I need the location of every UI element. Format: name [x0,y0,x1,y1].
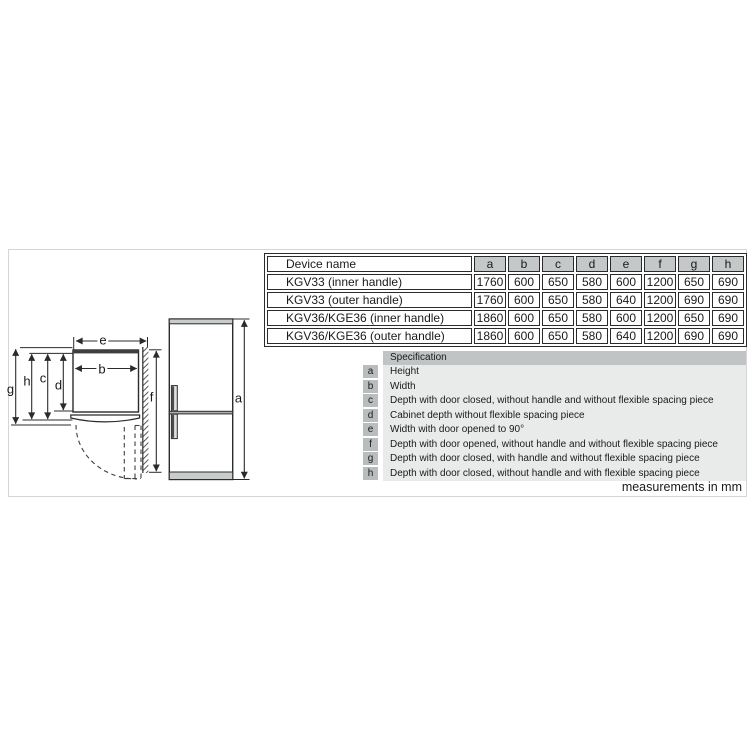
value-cell: 580 [576,328,608,344]
table-row: KGV33 (inner handle) 1760 600 650 580 60… [267,274,744,290]
device-name: KGV33 (outer handle) [267,292,472,308]
dim-label-b: b [96,362,107,375]
table-row: KGV36/KGE36 (inner handle) 1860 600 650 … [267,310,744,326]
fridge-door-divider [169,411,232,414]
dim-label-d: d [55,379,62,392]
spec-key: h [363,467,378,480]
spec-key: c [363,394,378,407]
value-cell: 1200 [644,310,676,326]
col-header-h: h [712,256,744,272]
value-cell: 1860 [474,310,506,326]
value-cell: 690 [678,328,710,344]
value-cell: 650 [542,292,574,308]
front-view [169,319,232,480]
device-name: KGV36/KGE36 (inner handle) [267,310,472,326]
spec-key: g [363,452,378,465]
value-cell: 600 [508,292,540,308]
fridge-plinth [169,472,232,480]
plan-door-open-dashed [76,425,141,479]
dim-label-c: c [40,372,47,385]
device-table: Device name a b c d e f g h KGV33 (inner… [264,253,747,347]
spec-key: b [363,380,378,393]
fridge-handle-lower [171,414,177,438]
dim-label-g: g [7,382,14,395]
value-cell: 1860 [474,328,506,344]
value-cell: 600 [508,274,540,290]
value-cell: 650 [678,274,710,290]
col-header-b: b [508,256,540,272]
spec-text: Depth with door closed, with handle and … [383,452,746,466]
spec-text: Depth with door opened, without handle a… [383,438,746,452]
spec-text: Height [383,365,746,379]
spec-legend: Specification a Height b Width c Depth w… [363,351,746,481]
col-header-c: c [542,256,574,272]
col-header-f: f [644,256,676,272]
wall-hatch [143,347,149,473]
value-cell: 580 [576,292,608,308]
value-cell: 640 [610,328,642,344]
col-header-e: e [610,256,642,272]
spec-key: a [363,365,378,378]
spec-legend-header-row: Specification [363,351,746,365]
value-cell: 600 [610,274,642,290]
value-cell: 650 [542,328,574,344]
value-cell: 1760 [474,292,506,308]
value-cell: 690 [712,310,744,326]
col-header-d: d [576,256,608,272]
spec-row: d Cabinet depth without flexible spacing… [363,409,746,423]
device-name: KGV33 (inner handle) [267,274,472,290]
spec-key: d [363,409,378,422]
spec-key: f [363,438,378,451]
plan-cabinet [73,350,139,412]
spec-text: Width with door opened to 90° [383,423,746,437]
value-cell: 640 [610,292,642,308]
fridge-body [169,319,232,480]
value-cell: 650 [542,274,574,290]
value-cell: 690 [678,292,710,308]
spec-row: f Depth with door opened, without handle… [363,438,746,452]
plan-door-closed [71,415,140,422]
dimension-diagram [9,309,265,493]
table-row: KGV36/KGE36 (outer handle) 1860 600 650 … [267,328,744,344]
value-cell: 1760 [474,274,506,290]
value-cell: 1200 [644,274,676,290]
spec-text: Cabinet depth without flexible spacing p… [383,409,746,423]
plan-spacer-strip [73,350,139,353]
spec-row: h Depth with door closed, without handle… [363,467,746,481]
page: { "frame_note": "measurements in mm", "t… [0,0,750,750]
dim-label-e: e [97,334,108,347]
value-cell: 600 [610,310,642,326]
value-cell: 1200 [644,292,676,308]
table-header-row: Device name a b c d e f g h [267,256,744,272]
figure-frame: e b g h c d f a Device name a b c d e f … [8,249,747,497]
units-note: measurements in mm [622,480,742,494]
dim-label-f: f [150,391,154,404]
spec-row: c Depth with door closed, without handle… [363,394,746,408]
value-cell: 650 [542,310,574,326]
value-cell: 690 [712,328,744,344]
value-cell: 650 [678,310,710,326]
value-cell: 600 [508,328,540,344]
spec-key: e [363,423,378,436]
spec-text: Width [383,380,746,394]
spec-row: b Width [363,380,746,394]
spec-text: Depth with door closed, without handle a… [383,394,746,408]
fridge-top-panel [169,319,232,324]
value-cell: 690 [712,292,744,308]
spec-row: e Width with door opened to 90° [363,423,746,437]
spec-row: g Depth with door closed, with handle an… [363,452,746,466]
table-row: KGV33 (outer handle) 1760 600 650 580 64… [267,292,744,308]
dim-label-a: a [235,392,242,405]
spec-text: Depth with door closed, without handle a… [383,467,746,481]
value-cell: 690 [712,274,744,290]
value-cell: 580 [576,310,608,326]
value-cell: 580 [576,274,608,290]
value-cell: 1200 [644,328,676,344]
col-header-g: g [678,256,710,272]
spec-row: a Height [363,365,746,379]
col-header-a: a [474,256,506,272]
dim-label-h: h [23,374,30,387]
spec-legend-title: Specification [383,351,746,365]
device-name: KGV36/KGE36 (outer handle) [267,328,472,344]
col-header-device-name: Device name [267,256,472,272]
fridge-handle-upper [171,386,177,411]
spec-key-spacer [363,351,378,364]
value-cell: 600 [508,310,540,326]
